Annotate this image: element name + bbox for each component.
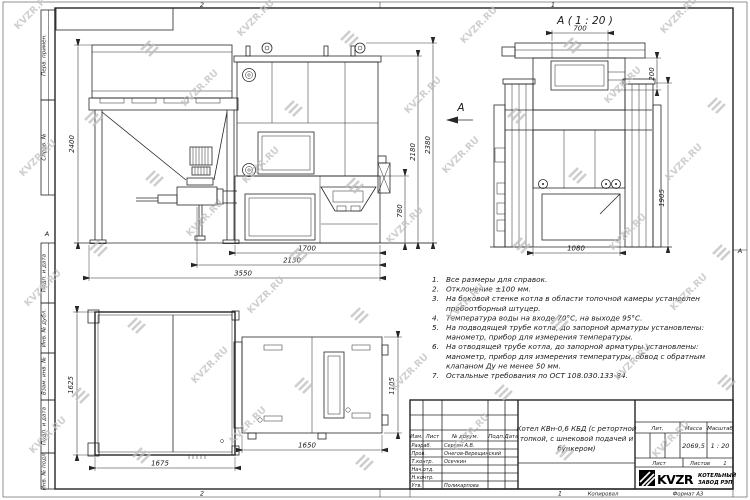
- zone-label: 1: [551, 1, 555, 9]
- watermark-logo-icon: [295, 378, 312, 393]
- kvzr-logo: KVZR КОТЕЛЬНЫЙ ЗАВОД РЭП: [639, 470, 737, 487]
- watermark-logo-icon: [356, 455, 373, 470]
- top-hatch: [324, 352, 344, 418]
- note-number: 3.: [432, 294, 439, 303]
- company-name-line2: ЗАВОД РЭП: [698, 480, 733, 486]
- note-line: На боковой стенке котла в области топочн…: [446, 294, 700, 303]
- zone-label: 2: [200, 1, 204, 9]
- doc-title-line: топкой, с шнековой подачей и: [520, 435, 634, 443]
- dim-1080: 1080: [567, 245, 585, 253]
- watermark-logo-icon: [708, 98, 725, 113]
- dim-3550: 3550: [234, 270, 252, 278]
- boiler-lower-section: [235, 176, 380, 243]
- footer-strip: Копировал Формат А3: [410, 489, 733, 498]
- dim-1625: 1625: [67, 376, 75, 394]
- detail-view-dimensions: 700 200 1905 1080: [533, 25, 672, 257]
- watermark-text: KVZR.RU: [668, 272, 710, 314]
- dim-200: 200: [648, 67, 656, 81]
- rear-hatch-panel: [551, 61, 608, 90]
- note-number: 6.: [432, 342, 439, 351]
- note-number: 7.: [432, 371, 439, 380]
- watermark-logo-icon: [85, 111, 102, 126]
- note-line: клапаном Ду не менее 50 мм.: [446, 361, 561, 370]
- door-hinge: [243, 69, 256, 82]
- watermark-text: KVZR.RU: [440, 135, 482, 177]
- watermark-text: KVZR.RU: [663, 142, 705, 184]
- view-direction-arrow: А: [446, 102, 473, 124]
- watermark-text: KVZR.RU: [402, 75, 444, 117]
- dim-2180: 2180: [409, 143, 417, 161]
- watermark-text: KVZR.RU: [184, 198, 226, 240]
- dim-1650: 1650: [298, 442, 316, 450]
- format-label: Формат А3: [673, 492, 704, 498]
- note-line: Остальные требования по ОСТ 108.030.133-…: [446, 371, 628, 380]
- watermark-text: KVZR.RU: [658, 0, 700, 36]
- watermark-logo-icon: [128, 318, 145, 333]
- tb-name: Поликарпова: [444, 483, 479, 489]
- watermark-text: KVZR.RU: [189, 345, 231, 387]
- watermark-logo-icon: [341, 31, 358, 46]
- bunker-plan: [88, 310, 239, 459]
- tb-role: Пров.: [412, 451, 427, 457]
- watermark-logo-icon: [564, 38, 581, 53]
- ash-door: [245, 194, 315, 240]
- view-arrow-label: А: [456, 102, 464, 114]
- dim-2380: 2380: [424, 136, 432, 154]
- watermark-logo-icon: [713, 245, 730, 260]
- tb-col-list: Лист: [425, 434, 441, 440]
- tb-sheet-label: Лист: [651, 461, 667, 467]
- note-line: манометр, прибор для измерения температу…: [446, 352, 706, 361]
- watermark-text: KVZR.RU: [389, 352, 431, 394]
- watermark-logo-icon: [133, 448, 150, 463]
- watermark-logo-icon: [569, 168, 586, 183]
- watermark-logo-icon: [351, 308, 368, 323]
- watermark-logo-icon: [285, 101, 302, 116]
- lifting-lug: [355, 43, 365, 53]
- zone-label: 1: [558, 490, 562, 498]
- lifting-lug: [262, 43, 272, 53]
- tb-col-data: Дата: [504, 434, 519, 440]
- left-margin-labels: Перв. примен. Справ. № Подп. и дата Инв.…: [41, 10, 55, 490]
- feeder-motor: [190, 147, 212, 175]
- tb-lit-label: Лит.: [650, 426, 663, 432]
- margin-label: Взам. инв. №: [42, 357, 48, 395]
- dim-700: 700: [573, 25, 587, 33]
- tb-role: Т.контр.: [412, 459, 434, 465]
- note-line: Температура воды на входе 70°С, на выход…: [446, 313, 642, 322]
- margin-label: Инв. № дубл.: [42, 309, 48, 347]
- note-number: 4.: [432, 313, 439, 322]
- tb-role: Разраб.: [412, 443, 432, 449]
- tb-col-izm: Изм.: [410, 434, 423, 440]
- tb-scale-label: Масштаб: [707, 426, 733, 432]
- note-line: Все размеры для справок.: [446, 275, 547, 284]
- watermark-text: KVZR.RU: [17, 138, 59, 180]
- ash-box: [542, 194, 620, 240]
- note-line: На подводящей трубе котла, до запорной а…: [446, 323, 704, 332]
- dim-780: 780: [396, 204, 404, 218]
- watermark-logo-icon: [513, 238, 530, 253]
- plan-view: 1625 1675 1650 1105: [67, 310, 402, 471]
- watermark-text: KVZR.RU: [235, 0, 277, 39]
- tb-col-podp: Подп.: [488, 434, 504, 440]
- note-line: На отводящей трубе котла, до запорной ар…: [446, 342, 698, 351]
- tb-name: Осечкин: [444, 459, 467, 465]
- note-line: Отклонение ±100 мм.: [446, 285, 531, 294]
- watermark-text: KVZR.RU: [12, 0, 54, 32]
- dim-1905: 1905: [658, 189, 666, 207]
- doc-title-line: Котел КВн-0,6 КБД (с ретортной: [517, 425, 637, 433]
- note-number: 1.: [432, 275, 439, 284]
- retort-burner: [321, 187, 376, 211]
- tb-sheets-value: 1: [723, 461, 726, 467]
- note-number: 2.: [432, 285, 439, 294]
- tb-role: Нач.отд.: [412, 467, 434, 473]
- company-name-line1: КОТЕЛЬНЫЙ: [698, 471, 737, 479]
- watermark-text: KVZR.RU: [650, 419, 692, 461]
- dim-2400: 2400: [68, 135, 76, 153]
- zone-label: 2: [200, 490, 204, 498]
- tb-name: Онегов-Верещинский: [444, 451, 502, 457]
- drawing-sheet: 2 1 2 1 А А Перв. примен. Справ. № Подп.…: [0, 0, 750, 500]
- watermark-text: KVZR.RU: [245, 275, 287, 317]
- margin-label: Перв. примен.: [42, 34, 48, 76]
- watermark-text: KVZR.RU: [602, 65, 644, 107]
- tb-sheets-label: Листов: [689, 461, 710, 467]
- watermark-text: KVZR.RU: [227, 405, 269, 447]
- watermark-text: KVZR.RU: [458, 5, 500, 47]
- note-number: 5.: [432, 323, 439, 332]
- tb-role: Н.контр.: [412, 475, 434, 481]
- dim-1675: 1675: [151, 460, 169, 468]
- tb-role: Утв.: [412, 483, 423, 489]
- logo-text: KVZR: [657, 472, 694, 487]
- watermark-logo-icon: [146, 171, 163, 186]
- copied-label: Копировал: [588, 492, 619, 498]
- watermark-logo-icon: [495, 385, 512, 400]
- top-left-reference-box: [56, 8, 173, 30]
- zone-label: А: [737, 247, 742, 255]
- tb-mass-value: 2069,5: [682, 442, 705, 450]
- zone-label: А: [44, 230, 49, 238]
- watermark-text: KVZR.RU: [240, 145, 282, 187]
- watermark-logo-icon: [141, 41, 158, 56]
- margin-label: Инв. № подл.: [42, 451, 48, 490]
- note-line: манометр, прибор для измерения температу…: [446, 333, 633, 342]
- watermark-text: KVZR.RU: [27, 415, 69, 457]
- tb-scale-value: 1 : 20: [711, 442, 730, 450]
- dim-1700: 1700: [298, 245, 316, 253]
